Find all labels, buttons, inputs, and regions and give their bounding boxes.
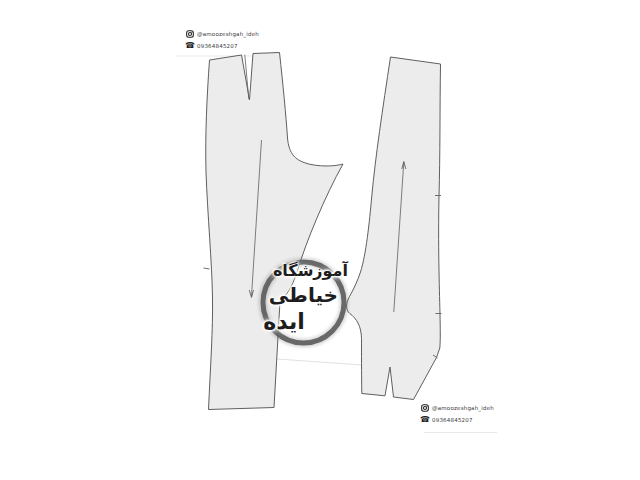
watermark-line-academy: آموزشگاه [278, 263, 348, 279]
watermark-line-ideh: ایده [254, 311, 314, 333]
instagram-icon [421, 404, 429, 412]
phone-icon: ☎ [186, 42, 194, 50]
watermark-line-sewing: خیاطی [274, 285, 338, 305]
instagram-row: @amoozeshgah_ideh [421, 403, 494, 412]
pattern-piece-front [204, 53, 344, 410]
phone-number: 09364845207 [197, 43, 238, 49]
pattern-drawing [0, 0, 640, 480]
instagram-handle: @amoozeshgah_ideh [432, 405, 494, 411]
back-piece-outline [347, 57, 441, 400]
phone-number: 09364845207 [432, 417, 473, 423]
phone-row: ☎ 09364845207 [186, 41, 259, 50]
front-piece-outline [206, 53, 343, 410]
pattern-sheet: آموزشگاه خیاطی ایده @amoozeshgah_ideh ☎ … [0, 0, 640, 480]
instagram-icon [186, 30, 194, 38]
instagram-handle: @amoozeshgah_ideh [197, 31, 259, 37]
contact-stamp-bottom: @amoozeshgah_ideh ☎ 09364845207 [421, 403, 494, 424]
instagram-row: @amoozeshgah_ideh [186, 29, 259, 38]
pattern-piece-back [347, 57, 442, 400]
front-side-notch [204, 268, 210, 269]
contact-stamp-top: @amoozeshgah_ideh ☎ 09364845207 [186, 29, 259, 50]
phone-icon: ☎ [421, 416, 429, 424]
phone-row: ☎ 09364845207 [421, 415, 494, 424]
